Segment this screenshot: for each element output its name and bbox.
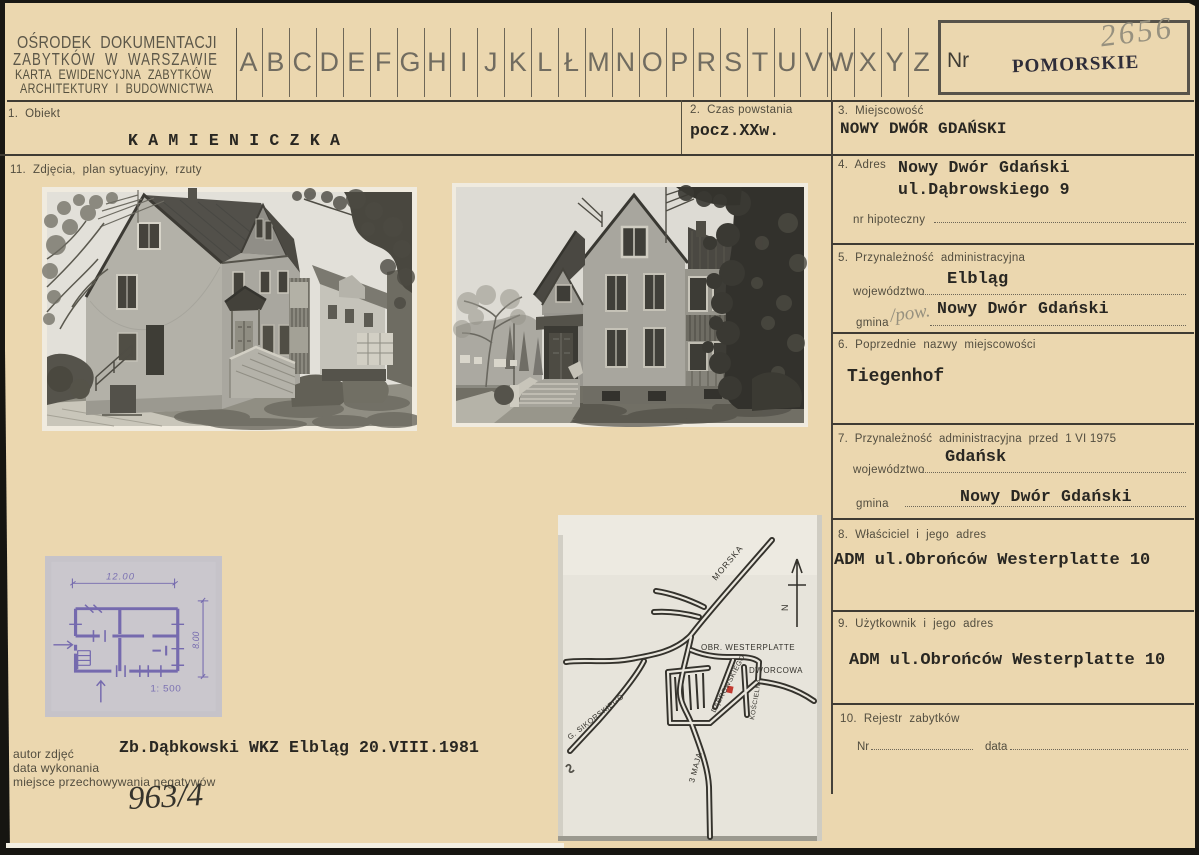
svg-text:12.00: 12.00 <box>106 572 135 582</box>
svg-text:8.00: 8.00 <box>191 632 201 649</box>
svg-text:DWORCOWA: DWORCOWA <box>749 666 803 675</box>
svg-text:1: 500: 1: 500 <box>150 684 181 695</box>
svg-text:N: N <box>780 605 790 612</box>
svg-text:OBR. WESTERPLATTE: OBR. WESTERPLATTE <box>701 643 795 652</box>
